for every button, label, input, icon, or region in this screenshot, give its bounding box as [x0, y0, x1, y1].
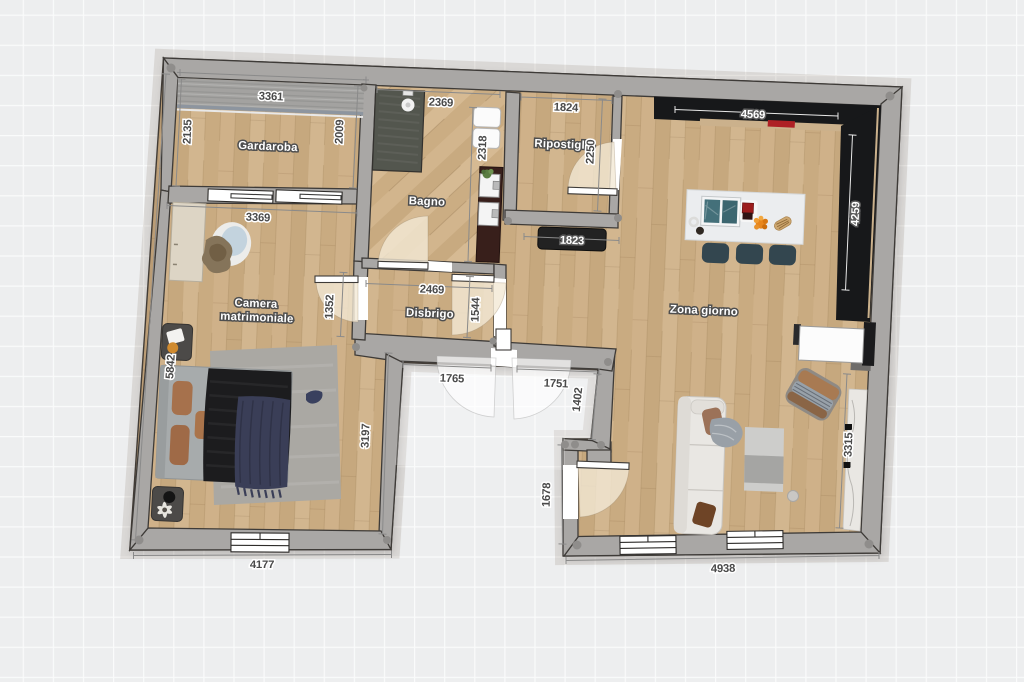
- svg-text:Disbrigo: Disbrigo: [406, 307, 454, 321]
- svg-text:2369: 2369: [429, 97, 454, 110]
- svg-text:4569: 4569: [741, 109, 766, 122]
- svg-text:1544: 1544: [470, 297, 483, 323]
- svg-text:Camera: Camera: [234, 297, 278, 311]
- svg-text:2469: 2469: [420, 284, 445, 297]
- svg-text:4177: 4177: [250, 559, 274, 571]
- svg-text:5842: 5842: [164, 354, 178, 379]
- svg-text:1823: 1823: [560, 235, 585, 248]
- svg-text:4938: 4938: [711, 563, 736, 575]
- svg-text:3315: 3315: [843, 432, 856, 457]
- svg-text:2318: 2318: [477, 135, 490, 160]
- svg-text:1824: 1824: [554, 102, 580, 115]
- svg-text:4259: 4259: [850, 201, 863, 226]
- svg-text:1678: 1678: [541, 483, 554, 508]
- svg-text:1765: 1765: [440, 373, 465, 386]
- svg-text:2135: 2135: [182, 119, 195, 144]
- svg-text:3197: 3197: [360, 423, 373, 448]
- svg-text:Gardaroba: Gardaroba: [238, 140, 298, 154]
- svg-text:1352: 1352: [324, 294, 337, 319]
- svg-text:3361: 3361: [259, 91, 284, 104]
- svg-text:3369: 3369: [246, 212, 271, 225]
- svg-text:Bagno: Bagno: [408, 195, 445, 208]
- svg-text:2009: 2009: [334, 119, 347, 144]
- svg-text:1751: 1751: [544, 378, 569, 391]
- svg-text:1402: 1402: [571, 387, 585, 412]
- svg-text:2250: 2250: [585, 139, 598, 164]
